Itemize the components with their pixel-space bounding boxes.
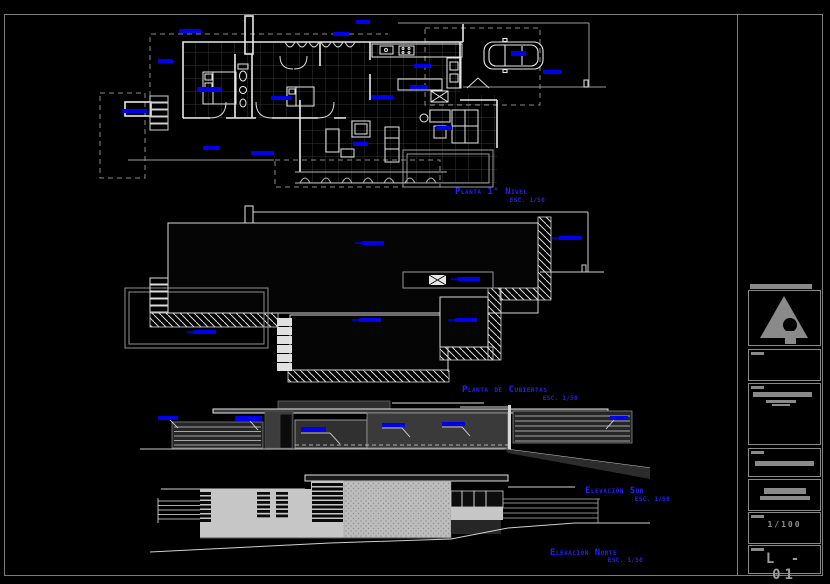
view-south-elevation [140, 401, 650, 479]
chimney-symbol [429, 275, 446, 285]
view-scale-south-elevation: ESC. 1/50 [585, 497, 670, 503]
stairs-plan [150, 96, 168, 130]
view-title-roof-plan: Planta de Cubiertas [462, 386, 547, 395]
architect-monogram-icon [760, 296, 808, 344]
view-title-first-floor: Planta 1° Nivel [455, 188, 528, 197]
view-roof-plan [125, 206, 604, 382]
view-north-elevation [150, 475, 650, 552]
window-band [451, 491, 503, 534]
title-block [749, 284, 821, 574]
drawing-sheet: Planta 1° Nivel ESC. 1/50 Planta de Cubi… [0, 0, 830, 584]
view-title-south-elevation: Elevación Sur [585, 487, 644, 496]
fence-left [158, 498, 200, 523]
view-scale-north-elevation: ESC. 1/50 [550, 558, 643, 564]
cad-sheet-canvas [0, 0, 830, 584]
view-first-floor-plan [100, 16, 606, 187]
titleblock-scale-value: 1/100 [748, 521, 821, 529]
view-scale-first-floor: ESC. 1/50 [455, 198, 545, 204]
louver-block-left [172, 422, 263, 448]
view-scale-roof-plan: ESC. 1/50 [462, 396, 578, 402]
louver-block-right [513, 411, 632, 443]
sheet-number: L - 01 [748, 551, 821, 583]
title-block-box-signature [749, 480, 821, 511]
